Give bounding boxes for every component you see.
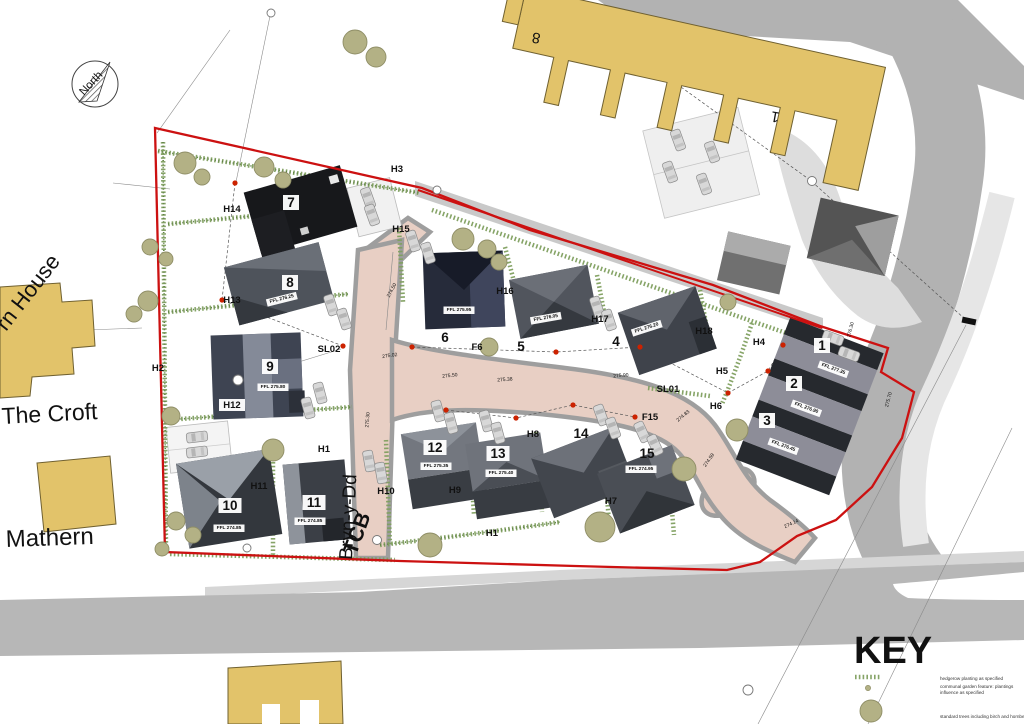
key-item-2: communal garden feature: plantings xyxy=(940,684,1014,689)
survey-point xyxy=(433,186,441,194)
label-group: 13 xyxy=(487,446,510,461)
tree xyxy=(126,306,142,322)
tree xyxy=(194,169,210,185)
label-group: 4 xyxy=(612,334,620,349)
label-group: 275.38 xyxy=(497,376,513,383)
label-group: 14 xyxy=(573,426,589,441)
car-body xyxy=(186,446,208,458)
car-body xyxy=(420,241,436,264)
label-group: 1 xyxy=(770,107,781,125)
label-text: FFL 275.80 xyxy=(261,384,286,390)
survey-point xyxy=(233,375,243,385)
label-group: Mathern xyxy=(5,523,94,553)
tree xyxy=(720,294,736,310)
label-group: H8 xyxy=(527,429,539,440)
label-text: H7 xyxy=(605,496,617,507)
label-group: H3 xyxy=(391,164,403,175)
label-text: H15 xyxy=(392,224,410,235)
label-text: 3 xyxy=(763,413,771,428)
tree xyxy=(478,240,496,258)
label-text: 6 xyxy=(441,330,449,345)
street-light-dot xyxy=(553,349,558,354)
tree xyxy=(155,542,169,556)
label-group: H2 xyxy=(152,363,164,374)
street-light-dot xyxy=(570,402,575,407)
tree xyxy=(726,419,748,441)
label-group: H15 xyxy=(392,224,410,235)
label-text: H8 xyxy=(527,429,539,440)
context-label: The Croft xyxy=(1,398,99,429)
tree xyxy=(275,172,291,188)
tree xyxy=(491,254,507,270)
tree xyxy=(452,228,474,250)
label-text: H10 xyxy=(377,486,394,497)
tree xyxy=(138,291,158,311)
parked-car xyxy=(420,241,436,264)
label-group: H9 xyxy=(449,485,461,496)
label-text: H2 xyxy=(152,363,164,374)
label-group: FFL 274.85 xyxy=(295,518,326,526)
parked-car xyxy=(336,307,352,330)
parked-car xyxy=(312,382,327,405)
label-text: 12 xyxy=(427,440,442,455)
tree xyxy=(585,512,615,542)
tree xyxy=(174,152,196,174)
street-light-dot xyxy=(780,342,785,347)
key-item-2b: influence as specified xyxy=(940,690,984,695)
label-text: FFL 275.35 xyxy=(424,463,449,469)
label-group: H1 xyxy=(318,444,331,455)
label-group: 15 xyxy=(639,446,655,461)
street-light-dot xyxy=(232,180,237,185)
plot-5-building xyxy=(509,265,599,339)
label-text: H4 xyxy=(753,337,766,348)
label-group: H17 xyxy=(591,314,608,325)
label-text: F6 xyxy=(471,342,482,353)
label-text: 1 xyxy=(818,338,826,353)
label-group: 8 xyxy=(282,275,298,290)
label-group: 5 xyxy=(517,339,525,354)
tree xyxy=(480,338,498,356)
label-group: F6 xyxy=(471,342,482,353)
label-text: H6 xyxy=(710,401,722,412)
street-light-dot xyxy=(725,390,730,395)
north-arrow: North xyxy=(72,61,118,107)
label-text: 13 xyxy=(490,446,506,461)
label-group: H10 xyxy=(377,486,394,497)
survey-point xyxy=(808,177,817,186)
label-group: 7 xyxy=(283,195,299,210)
label-group: H16 xyxy=(496,286,513,297)
label-group: H6 xyxy=(710,401,722,412)
label-group: 276.30 xyxy=(846,321,856,338)
label-group: SL02 xyxy=(318,344,341,355)
tree xyxy=(254,157,274,177)
label-text: SL01 xyxy=(657,384,680,395)
label-group: FFL 274.95 xyxy=(626,466,657,474)
car-body xyxy=(336,307,352,330)
street-light-dot xyxy=(340,343,345,348)
survey-point xyxy=(373,536,382,545)
existing-house-mathern xyxy=(37,456,116,532)
label-text: 11 xyxy=(307,495,322,510)
label-text: 7 xyxy=(287,195,295,210)
label-text: 276.30 xyxy=(846,321,856,338)
label-group: 9 xyxy=(262,359,278,374)
label-text: FFL 274.85 xyxy=(217,525,242,531)
label-text: 14 xyxy=(573,426,589,441)
label-text: FFL 274.95 xyxy=(629,466,654,472)
plot-8-building xyxy=(224,242,334,325)
label-group: H14 xyxy=(223,204,241,215)
label-text: H5 xyxy=(716,366,729,377)
tree xyxy=(418,533,442,557)
label-group: FFL 275.95 xyxy=(444,307,475,315)
label-group: H4 xyxy=(753,337,766,348)
tree xyxy=(343,30,367,54)
street-light-dot xyxy=(409,344,414,349)
tree xyxy=(162,407,180,425)
label-text: FFL 274.85 xyxy=(298,518,323,524)
survey-point xyxy=(267,9,275,17)
label-group: H7 xyxy=(605,496,617,507)
label-group: FFL 275.80 xyxy=(258,384,289,392)
label-text: 8 xyxy=(286,275,294,290)
key-item-3: standard trees including birch and hornb… xyxy=(940,714,1024,719)
label-text: 9 xyxy=(266,359,274,374)
label-group: H18 xyxy=(695,326,712,337)
context-label: Mathern xyxy=(5,523,94,553)
tree-swatch xyxy=(860,700,882,722)
label-text: H9 xyxy=(449,485,461,496)
label-group: 10 xyxy=(219,498,242,513)
label-text: 275.38 xyxy=(497,376,513,383)
survey-point xyxy=(743,685,753,695)
label-group: H5 xyxy=(716,366,729,377)
street-light-dot xyxy=(513,415,518,420)
context-label: 1 xyxy=(770,107,781,125)
street-light-dot xyxy=(765,368,770,373)
street-light-dot xyxy=(443,407,448,412)
label-text: H18 xyxy=(695,326,712,337)
label-text: H11 xyxy=(251,481,269,492)
label-text: H12 xyxy=(223,400,240,411)
label-group: F15 xyxy=(642,412,659,423)
label-group: 11 xyxy=(303,495,326,510)
key-item-1: hedgerow planting as specified xyxy=(940,676,1004,681)
tree xyxy=(167,512,185,530)
label-group: 3 xyxy=(759,413,775,428)
label-text: F15 xyxy=(642,412,659,423)
label-text: H1 xyxy=(486,528,499,539)
key-block: KEY hedgerow planting as specified commu… xyxy=(854,630,1024,722)
key-title: KEY xyxy=(854,630,932,672)
label-group: FFL 275.35 xyxy=(421,463,452,471)
survey-point xyxy=(243,544,251,552)
label-group: H13 xyxy=(223,295,240,306)
label-text: 5 xyxy=(517,339,525,354)
label-text: 10 xyxy=(222,498,237,513)
label-group: The Croft xyxy=(1,398,99,429)
label-group: H11 xyxy=(251,481,269,492)
label-group: 1 xyxy=(814,338,830,353)
existing-house-south xyxy=(228,661,343,724)
parked-car xyxy=(186,446,208,458)
label-text: 4 xyxy=(612,334,620,349)
label-text: SL02 xyxy=(318,344,341,355)
tree xyxy=(672,457,696,481)
tree xyxy=(185,527,201,543)
label-text: H17 xyxy=(591,314,608,325)
street-light-dot xyxy=(632,414,637,419)
site-plan-canvas: North KEY hedgerow planting as specified… xyxy=(0,0,1024,724)
site-plan-drawing: North KEY hedgerow planting as specified… xyxy=(0,0,1024,724)
parked-car xyxy=(186,431,208,443)
label-group: FFL 275.40 xyxy=(486,470,517,478)
label-text: 2 xyxy=(790,376,798,391)
label-text: FFL 275.40 xyxy=(489,470,514,476)
label-text: FFL 275.95 xyxy=(447,307,472,313)
tree xyxy=(159,252,173,266)
street-light-dot xyxy=(637,344,642,349)
label-text: H1 xyxy=(318,444,331,455)
car-body xyxy=(186,431,208,443)
tree xyxy=(262,439,284,461)
tree xyxy=(366,47,386,67)
label-group: H1 xyxy=(486,528,499,539)
label-group: 2 xyxy=(786,376,802,391)
label-text: H16 xyxy=(496,286,513,297)
car-body xyxy=(312,382,327,405)
label-text: H13 xyxy=(223,295,240,306)
label-group: SL01 xyxy=(657,384,680,395)
label-text: H14 xyxy=(223,204,241,215)
label-group: 6 xyxy=(441,330,449,345)
garden-dot-swatch xyxy=(865,685,870,690)
label-text: 15 xyxy=(639,446,655,461)
label-text: H3 xyxy=(391,164,403,175)
label-group: FFL 274.85 xyxy=(214,525,245,533)
label-group: 12 xyxy=(424,440,447,455)
tree xyxy=(142,239,158,255)
label-group: H12 xyxy=(219,399,245,411)
